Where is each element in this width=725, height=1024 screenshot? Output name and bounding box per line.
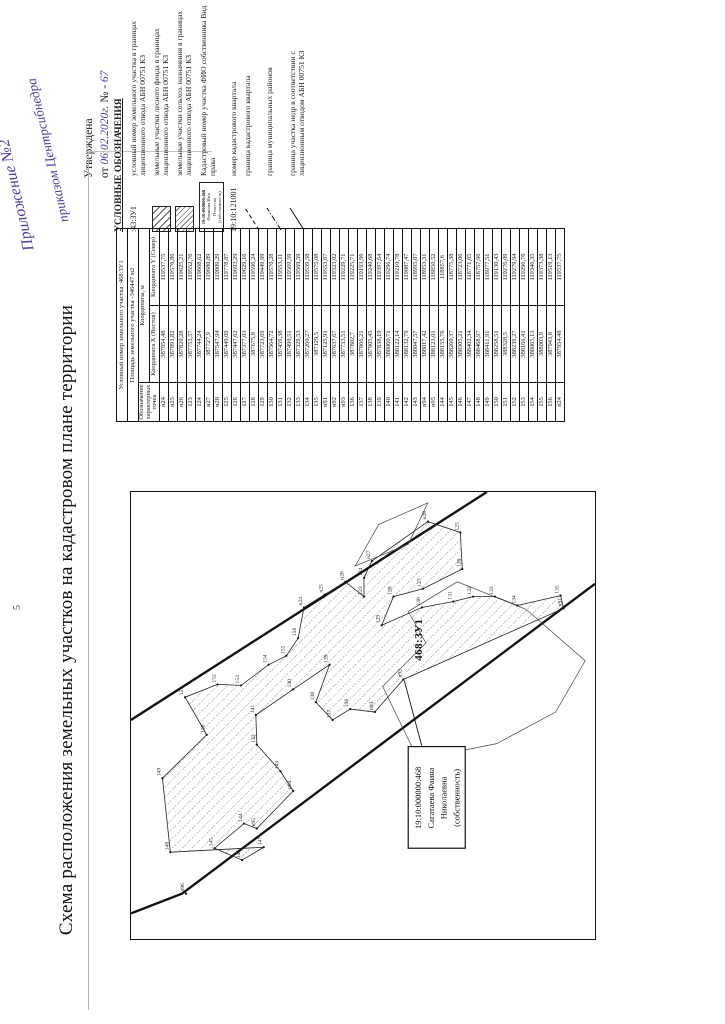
x-cell: 387802,7 — [349, 306, 358, 383]
hatch-forest-swatch-icon — [152, 176, 171, 232]
point-cell: 144 — [439, 383, 448, 422]
survey-point-label: 144 — [238, 813, 244, 822]
legend-item: 19:10:000000:468Фамилия ИмяОтчество(собс… — [199, 2, 224, 232]
point-cell: 145 — [448, 383, 457, 422]
point-cell: 129 — [259, 383, 268, 422]
y-cell: 119210,78 — [394, 229, 403, 306]
survey-point-label: 152 — [212, 674, 218, 683]
survey-point — [349, 708, 351, 710]
y-cell: 118771,65 — [466, 229, 475, 306]
survey-point-label: н93 — [369, 701, 375, 710]
x-cell: 388060,71 — [385, 306, 394, 383]
table-parcel-area: Площадь земельного участка -346447 м2 — [128, 229, 139, 422]
x-cell: 388258,51 — [493, 306, 502, 383]
x-cell: 387637,67 — [331, 306, 340, 383]
y-cell: 118723,06 — [457, 229, 466, 306]
y-cell: 119596,24 — [250, 229, 259, 306]
point-cell: н25 — [169, 383, 178, 422]
survey-point-label: 145 — [209, 838, 215, 847]
survey-point-label: 136 — [344, 699, 350, 708]
y-cell: 119668,62 — [196, 229, 205, 306]
x-cell: 387866,21 — [358, 306, 367, 383]
point-cell: 132 — [286, 383, 295, 422]
survey-point-label: н95 — [251, 818, 257, 827]
table-row: н94388017,42118953,31 — [421, 229, 430, 422]
table-row: 142388132,79119087,47 — [403, 229, 412, 422]
survey-point — [213, 847, 215, 849]
x-cell: 388239,27 — [511, 306, 520, 383]
x-cell: 388468,97 — [475, 306, 484, 383]
survey-point-label: 133 — [489, 586, 495, 595]
column-header-point: Обозначение характерных точек — [139, 383, 160, 422]
y-cell: 119570,28 — [268, 229, 277, 306]
table-row: 130387564,72119570,28 — [268, 229, 277, 422]
survey-point — [363, 596, 365, 598]
table-row: 133387329,53119569,59 — [295, 229, 304, 422]
handwritten-note-line2: приказом Центрсибнедра — [24, 77, 73, 224]
point-cell: 154 — [529, 383, 538, 422]
table-row: 138387905,45119240,68 — [367, 229, 376, 422]
point-cell: 148 — [475, 383, 484, 422]
approval-number-sign: № - — [99, 85, 111, 103]
survey-point-label: 150 — [201, 724, 207, 733]
approval-date-line: от 06.02.2020г. № - 67 — [98, 71, 114, 178]
survey-point — [292, 688, 294, 690]
y-cell: 119553,67 — [322, 229, 331, 306]
y-cell: 119296,76 — [520, 229, 529, 306]
survey-point-label: 123 — [358, 586, 364, 595]
line-solid-icon — [288, 176, 306, 232]
table-row: 152388239,27119279,94 — [511, 229, 520, 422]
y-cell: 119087,47 — [403, 229, 412, 306]
survey-point-label: 135 — [555, 585, 561, 594]
x-cell: 388122,14 — [394, 306, 403, 383]
table-row: 126387447,62119693,29 — [232, 229, 241, 422]
y-cell: 119575,08 — [313, 229, 322, 306]
point-cell: 136 — [349, 383, 358, 422]
survey-point — [303, 606, 305, 608]
y-cell: 118977,51 — [484, 229, 493, 306]
table-row: 144388155,76118857,6 — [439, 229, 448, 422]
point-cell: н28 — [214, 383, 223, 422]
x-cell: 388411,91 — [484, 306, 493, 383]
x-cell: 387260,27 — [304, 306, 313, 383]
survey-point-label: н28 — [422, 511, 428, 520]
legend-items: :43:ЗУ1условный номер земельного участка… — [129, 2, 306, 232]
column-header-x: Координата X (Восток) — [149, 306, 160, 383]
survey-point-label: 147 — [258, 837, 264, 846]
y-cell: 119629,16 — [241, 229, 250, 306]
survey-point-label: 129 — [376, 615, 382, 624]
survey-point — [240, 684, 242, 686]
x-cell: 387490,51 — [286, 306, 295, 383]
y-cell: 119279,94 — [511, 229, 520, 306]
survey-point — [374, 711, 376, 713]
survey-point-label: н25 — [319, 584, 325, 593]
survey-point — [292, 790, 294, 792]
point-cell: 156 — [547, 383, 556, 422]
survey-point — [243, 822, 245, 824]
x-cell: 387943,8 — [547, 306, 556, 383]
point-cell: 142 — [403, 383, 412, 422]
survey-point-label: н92 — [397, 669, 403, 678]
y-cell: 119276,09 — [502, 229, 511, 306]
table-row: 139387838,19119397,64 — [376, 229, 385, 422]
point-cell: н26 — [178, 383, 187, 422]
point-cell: 139 — [376, 383, 385, 422]
table-row: 150388258,51119130,43 — [493, 229, 502, 422]
table-row: н91387125,91119553,67 — [322, 229, 331, 422]
survey-point — [452, 600, 454, 602]
y-cell: 119680,89 — [205, 229, 214, 306]
table-row: 128387675,8119596,24 — [250, 229, 259, 422]
legend-item: :43:ЗУ1условный номер земельного участка… — [129, 2, 147, 232]
survey-point — [206, 734, 208, 736]
column-header-y: Координата Y (Север) — [149, 229, 160, 306]
table-row: н24387954,48119537,75 — [160, 229, 169, 422]
y-cell: 119225,71 — [349, 229, 358, 306]
survey-point-label: 137 — [327, 709, 333, 718]
coordinates-table: Условный номер земельного участка :468:З… — [116, 228, 565, 422]
x-cell: 388003,9 — [538, 306, 547, 383]
x-cell: 387744,24 — [196, 306, 205, 383]
approval-block: Утверждена от 06.02.2020г. № - 67 — [82, 71, 113, 178]
survey-point-label: н24 — [298, 597, 304, 606]
x-cell: 388017,42 — [421, 306, 430, 383]
x-cell: 388260,37 — [448, 306, 457, 383]
table-row: н25387891,82119576,86 — [169, 229, 178, 422]
survey-point — [328, 664, 330, 666]
legend-item-label: земельные участки сельхоз. назначения в … — [175, 2, 193, 176]
survey-point — [185, 893, 187, 895]
legend-item-label: номер кадастрового квартала — [229, 82, 239, 176]
survey-point — [216, 683, 218, 685]
survey-point — [516, 604, 518, 606]
owner-info-line: (собственность) — [451, 769, 461, 827]
point-cell: 130 — [268, 383, 277, 422]
y-cell: 119553,11 — [277, 229, 286, 306]
survey-point — [297, 637, 299, 639]
survey-point-label: 139 — [324, 654, 330, 663]
survey-point — [256, 744, 258, 746]
table-row: н26387820,28119625,21 — [178, 229, 187, 422]
legend-item: земельные участки сельхоз. назначения в … — [175, 2, 194, 232]
survey-point — [363, 577, 365, 579]
survey-point-label: 127 — [417, 578, 423, 587]
y-cell: 118953,31 — [421, 229, 430, 306]
coords-table-body: н24387954,48119537,75н25387891,82119576,… — [160, 229, 565, 422]
survey-point-label: н94 — [287, 780, 293, 789]
y-cell: 119576,86 — [169, 229, 178, 306]
x-cell: 387753,57 — [187, 306, 196, 383]
point-cell: 134 — [304, 383, 313, 422]
page-title: Схема расположения земельных участков на… — [56, 244, 78, 996]
legend-item: граница кадастрового квартала — [243, 2, 261, 232]
approval-label: Утверждена — [82, 71, 98, 178]
table-row: 151388328,5119276,09 — [502, 229, 511, 422]
x-cell: 387129,5 — [313, 306, 322, 383]
legend-panel: УСЛОВНЫЕ ОБОЗНАЧЕНИЯ :43:ЗУ1условный ном… — [114, 2, 311, 232]
y-cell: 118757,96 — [475, 229, 484, 306]
survey-point — [459, 531, 461, 533]
survey-point-label: 153 — [235, 675, 241, 684]
survey-point — [461, 568, 463, 570]
table-row: 123387753,57119552,76 — [187, 229, 196, 422]
survey-point-label: н26 — [339, 571, 345, 580]
point-cell: 124 — [196, 383, 205, 422]
survey-point — [263, 846, 265, 848]
x-cell: 387329,53 — [295, 306, 304, 383]
y-cell: 119240,68 — [367, 229, 376, 306]
approval-prefix: от — [99, 167, 111, 178]
legend-item-label: граница участка недр в соответствии с ли… — [288, 2, 306, 176]
y-cell: 119569,59 — [295, 229, 304, 306]
point-cell: н95 — [430, 383, 439, 422]
point-cell: 141 — [394, 383, 403, 422]
table-row: н27387727,9119680,89 — [205, 229, 214, 422]
table-row: 127387377,03119629,16 — [241, 229, 250, 422]
table-row: 134387260,27119539,58 — [304, 229, 313, 422]
survey-point-label: 128 — [388, 586, 394, 595]
cadastral-map-svg: н24н25н26123124н27н281251261271281291301… — [131, 492, 595, 939]
survey-point — [324, 594, 326, 596]
survey-point — [268, 664, 270, 666]
y-cell: 119193,96 — [358, 229, 367, 306]
y-cell: 118850,52 — [430, 229, 439, 306]
x-cell: 387954,48 — [556, 306, 565, 383]
table-row: 149388411,91118977,51 — [484, 229, 493, 422]
table-row: 141388122,14119210,78 — [394, 229, 403, 422]
survey-point — [562, 607, 564, 609]
point-cell: н94 — [421, 383, 430, 422]
line-dashed-icon — [243, 176, 261, 232]
x-cell: 387377,03 — [241, 306, 250, 383]
point-cell: н91 — [322, 383, 331, 422]
survey-point-label: 131 — [447, 591, 453, 600]
x-cell: 388065,13 — [529, 306, 538, 383]
survey-point-label: 132 — [467, 586, 473, 595]
table-row: 154388065,13119346,35 — [529, 229, 538, 422]
survey-point-label: 140 — [287, 679, 293, 688]
table-row: 143388047,57118995,07 — [412, 229, 421, 422]
y-cell: 119346,35 — [529, 229, 538, 306]
y-cell: 119537,75 — [160, 229, 169, 306]
x-cell: 387905,45 — [367, 306, 376, 383]
legend-item: граница муниципальных районов — [265, 2, 283, 232]
x-cell: 387449,09 — [223, 306, 232, 383]
survey-point — [256, 827, 258, 829]
survey-point — [255, 714, 257, 716]
survey-point — [402, 678, 404, 680]
x-cell: 387838,19 — [376, 306, 385, 383]
survey-point-label: 143 — [274, 761, 280, 770]
coordinates-table-wrap: Условный номер земельного участка :468:З… — [116, 228, 565, 422]
legend-item: земельные участки лесного фонда в границ… — [152, 2, 171, 232]
cadastral-map: н24н25н26123124н27н281251261271281291301… — [130, 491, 596, 940]
point-cell: н24 — [160, 383, 169, 422]
point-cell: 152 — [511, 383, 520, 422]
point-cell: 147 — [466, 383, 475, 422]
document-sheet: Приложение №2 приказом Центрсибнедра Утв… — [0, 0, 725, 1024]
survey-point-label: 141 — [250, 705, 256, 714]
survey-point — [344, 581, 346, 583]
y-cell: 118995,07 — [412, 229, 421, 306]
y-cell: 119539,58 — [304, 229, 313, 306]
survey-point — [392, 596, 394, 598]
x-cell: 387733,51 — [340, 306, 349, 383]
x-cell: 388166,41 — [520, 306, 529, 383]
survey-point — [494, 596, 496, 598]
survey-point-label: 155 — [280, 645, 286, 654]
table-row: 147388402,34118771,65 — [466, 229, 475, 422]
y-cell: 118775,38 — [448, 229, 457, 306]
point-cell: 150 — [493, 383, 502, 422]
survey-point — [371, 560, 373, 562]
point-cell: 138 — [367, 383, 376, 422]
table-row: 137387866,21119193,96 — [358, 229, 367, 422]
x-cell: 387727,9 — [205, 306, 214, 383]
owner-info-line: Сагатаева Фаина — [426, 767, 436, 828]
y-cell: 119537,75 — [556, 229, 565, 306]
survey-point — [472, 596, 474, 598]
table-row: 124387744,24119668,62 — [196, 229, 205, 422]
y-cell: 119778,87 — [223, 229, 232, 306]
point-cell: 135 — [313, 383, 322, 422]
table-row: 135387129,5119575,08 — [313, 229, 322, 422]
owner-box-sample-icon: 19:10:000000:468Фамилия ИмяОтчество(собс… — [199, 176, 224, 232]
survey-point-label: 142 — [251, 734, 257, 743]
legend-item: граница участка недр в соответствии с ли… — [288, 2, 306, 232]
x-cell: 388305,21 — [457, 306, 466, 383]
y-cell: 119323,02 — [331, 229, 340, 306]
survey-point — [427, 521, 429, 523]
point-cell: 131 — [277, 383, 286, 422]
survey-point-label: 134 — [511, 595, 517, 604]
y-cell: 119449,99 — [259, 229, 268, 306]
survey-point-label: 124 — [358, 567, 364, 576]
survey-point — [285, 655, 287, 657]
parcel-number-label: 468:ЗУ1 — [413, 619, 425, 661]
table-row: 145388260,37118775,38 — [448, 229, 457, 422]
point-cell: 133 — [295, 383, 304, 422]
point-cell: 149 — [484, 383, 493, 422]
table-row: 156387943,8119519,13 — [547, 229, 556, 422]
survey-point-label: н27 — [366, 550, 372, 559]
survey-point-label: 138 — [310, 692, 316, 701]
survey-point — [315, 701, 317, 703]
x-cell: 387954,48 — [160, 306, 169, 383]
table-row: 148388468,97118757,96 — [475, 229, 484, 422]
y-cell: 119130,43 — [493, 229, 502, 306]
table-row: 132387490,51119569,59 — [286, 229, 295, 422]
survey-point-label: 151 — [179, 687, 185, 696]
table-parcel-number: Условный номер земельного участка :468:З… — [117, 229, 128, 422]
x-cell: 387447,62 — [232, 306, 241, 383]
legend-header: УСЛОВНЫЕ ОБОЗНАЧЕНИЯ — [114, 2, 124, 232]
survey-point-label: 154 — [263, 654, 269, 663]
x-cell: 388402,34 — [466, 306, 475, 383]
y-cell: 119519,13 — [547, 229, 556, 306]
point-cell: 137 — [358, 383, 367, 422]
survey-point — [161, 777, 163, 779]
point-cell: н92 — [331, 383, 340, 422]
survey-point — [560, 595, 562, 597]
survey-point — [169, 851, 171, 853]
point-cell: 125 — [223, 383, 232, 422]
approval-date-handwritten: 06.02.2020г. — [99, 106, 111, 165]
point-cell: 128 — [250, 383, 259, 422]
survey-point — [331, 719, 333, 721]
point-cell: 143 — [412, 383, 421, 422]
legend-item: 19:10:121001номер кадастрового квартала — [229, 2, 239, 232]
y-cell: 119693,29 — [232, 229, 241, 306]
survey-point-label: 125 — [454, 522, 460, 531]
x-cell: 387675,8 — [250, 306, 259, 383]
approval-number-handwritten: 67 — [99, 71, 111, 83]
x-cell: 387547,94 — [214, 306, 223, 383]
point-cell: 127 — [241, 383, 250, 422]
survey-point-label: 156 — [292, 628, 298, 637]
table-row: 155388003,9119373,38 — [538, 229, 547, 422]
y-cell: 119552,76 — [187, 229, 196, 306]
owner-info-line: Николаевна — [439, 776, 449, 819]
x-cell: 387820,28 — [178, 306, 187, 383]
table-row: 153388166,41119296,76 — [520, 229, 529, 422]
x-cell: 388328,5 — [502, 306, 511, 383]
point-cell: 140 — [385, 383, 394, 422]
table-row: н93387733,51119229,71 — [340, 229, 349, 422]
survey-point — [421, 606, 423, 608]
point-cell: 151 — [502, 383, 511, 422]
legend-symbol-text: :43:ЗУ1 — [129, 176, 138, 232]
point-cell: 123 — [187, 383, 196, 422]
survey-point — [422, 588, 424, 590]
y-cell: 119373,38 — [538, 229, 547, 306]
point-cell: н93 — [340, 383, 349, 422]
legend-item-label: граница кадастрового квартала — [243, 76, 253, 177]
y-cell: 119625,21 — [178, 229, 187, 306]
legend-item-label: земельные участки лесного фонда в границ… — [152, 2, 170, 176]
legend-item-label: условный номер земельного участка в гран… — [129, 2, 147, 176]
survey-point-label: 130 — [416, 597, 422, 606]
table-row: 131387459,38119553,11 — [277, 229, 286, 422]
x-cell: 387459,38 — [277, 306, 286, 383]
table-row: н24387954,48119537,75 — [556, 229, 565, 422]
y-cell: 119296,74 — [385, 229, 394, 306]
x-cell: 387891,82 — [169, 306, 178, 383]
hatch-agri-swatch-icon — [175, 176, 194, 232]
legend-symbol-text: 19:10:121001 — [229, 176, 238, 232]
table-row: 129387723,69119449,99 — [259, 229, 268, 422]
y-cell: 119809,29 — [214, 229, 223, 306]
y-cell: 119569,59 — [286, 229, 295, 306]
point-cell: н24 — [556, 383, 565, 422]
handwritten-note-line1: Приложение №2 — [0, 137, 39, 252]
y-cell: 118857,6 — [439, 229, 448, 306]
column-header-coords: Координаты, м — [139, 229, 150, 383]
y-cell: 119229,71 — [340, 229, 349, 306]
x-cell: 387564,72 — [268, 306, 277, 383]
y-cell: 119397,64 — [376, 229, 385, 306]
legend-item-label: граница муниципальных районов — [265, 67, 275, 176]
survey-point — [279, 770, 281, 772]
header-rule — [88, 152, 89, 1010]
point-cell: н27 — [205, 383, 214, 422]
x-cell: 388132,79 — [403, 306, 412, 383]
owner-info-line: 19:10:000000:468 — [413, 767, 423, 829]
survey-point — [381, 624, 383, 626]
table-row: 136387802,7119225,71 — [349, 229, 358, 422]
